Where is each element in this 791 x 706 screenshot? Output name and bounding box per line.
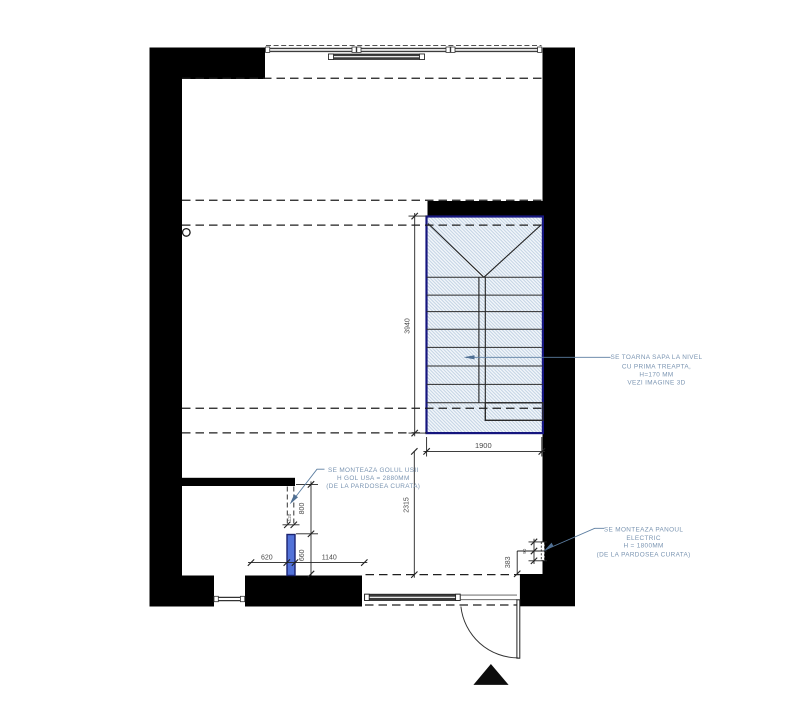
svg-text:CU PRIMA TREAPTA,: CU PRIMA TREAPTA, bbox=[622, 364, 691, 371]
svg-text:VEZI IMAGINE 3D: VEZI IMAGINE 3D bbox=[627, 380, 685, 387]
svg-text:SE MONTEAZA PANOUL: SE MONTEAZA PANOUL bbox=[604, 527, 683, 534]
svg-text:90: 90 bbox=[522, 548, 527, 554]
svg-text:SE MONTEAZA GOLUL USII: SE MONTEAZA GOLUL USII bbox=[328, 467, 419, 474]
svg-text:H = 1800MM: H = 1800MM bbox=[623, 543, 663, 550]
svg-text:1900: 1900 bbox=[475, 441, 492, 450]
svg-text:1140: 1140 bbox=[322, 554, 337, 561]
svg-text:H GOL USA = 2880MM: H GOL USA = 2880MM bbox=[337, 475, 410, 482]
svg-text:ELECTRIC: ELECTRIC bbox=[626, 535, 660, 542]
svg-text:(DE LA PARDOSEA CURATA): (DE LA PARDOSEA CURATA) bbox=[597, 552, 691, 559]
svg-text:660: 660 bbox=[299, 549, 306, 561]
svg-text:383: 383 bbox=[505, 556, 512, 568]
svg-text:H=170 MM: H=170 MM bbox=[639, 371, 673, 378]
svg-text:800: 800 bbox=[299, 503, 306, 515]
svg-text:3940: 3940 bbox=[405, 318, 412, 334]
svg-text:120: 120 bbox=[287, 513, 292, 521]
svg-text:SE TOARNA SAPA LA NIVEL: SE TOARNA SAPA LA NIVEL bbox=[611, 354, 703, 361]
svg-text:(DE LA PARDOSEA CURATA): (DE LA PARDOSEA CURATA) bbox=[326, 483, 420, 490]
svg-text:620: 620 bbox=[261, 554, 273, 561]
svg-text:2315: 2315 bbox=[404, 497, 411, 513]
